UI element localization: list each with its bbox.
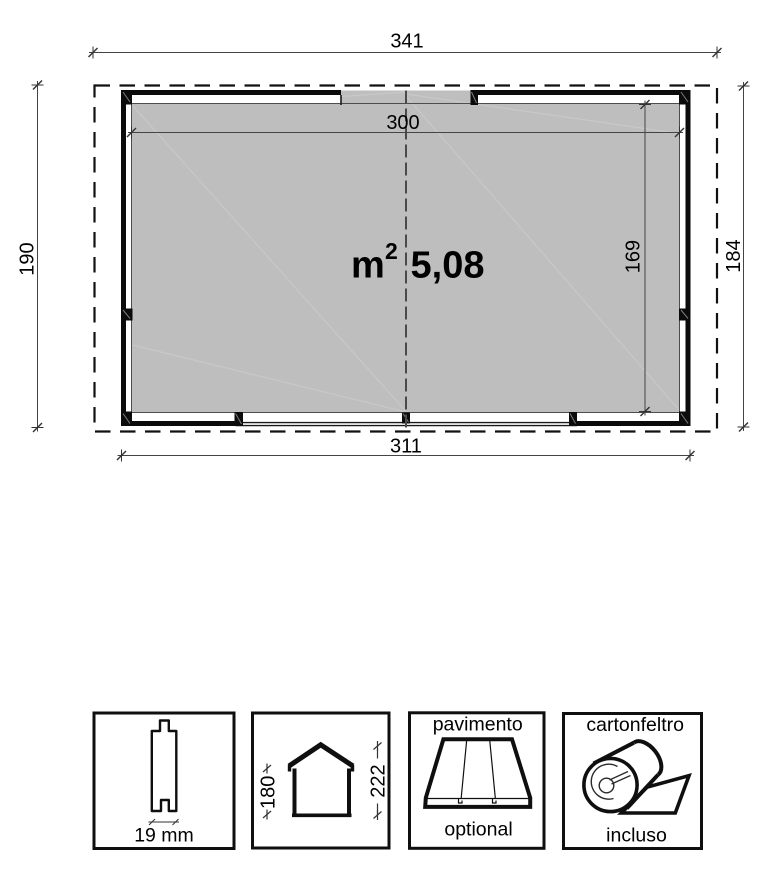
svg-text:optional: optional bbox=[444, 819, 512, 841]
svg-text:incluso: incluso bbox=[606, 825, 667, 847]
svg-text:184: 184 bbox=[723, 239, 745, 272]
svg-text:cartonfeltro: cartonfeltro bbox=[586, 714, 684, 736]
svg-text:19 mm: 19 mm bbox=[134, 825, 194, 847]
svg-text:2: 2 bbox=[385, 238, 398, 264]
svg-text:m: m bbox=[351, 245, 385, 287]
svg-text:169: 169 bbox=[622, 240, 644, 273]
svg-text:222: 222 bbox=[367, 764, 389, 797]
svg-text:341: 341 bbox=[390, 31, 423, 53]
svg-text:300: 300 bbox=[386, 112, 419, 134]
svg-text:5,08: 5,08 bbox=[411, 245, 485, 287]
svg-text:180: 180 bbox=[257, 776, 279, 809]
svg-text:190: 190 bbox=[16, 242, 38, 275]
svg-text:311: 311 bbox=[390, 436, 422, 458]
svg-text:pavimento: pavimento bbox=[433, 714, 523, 736]
